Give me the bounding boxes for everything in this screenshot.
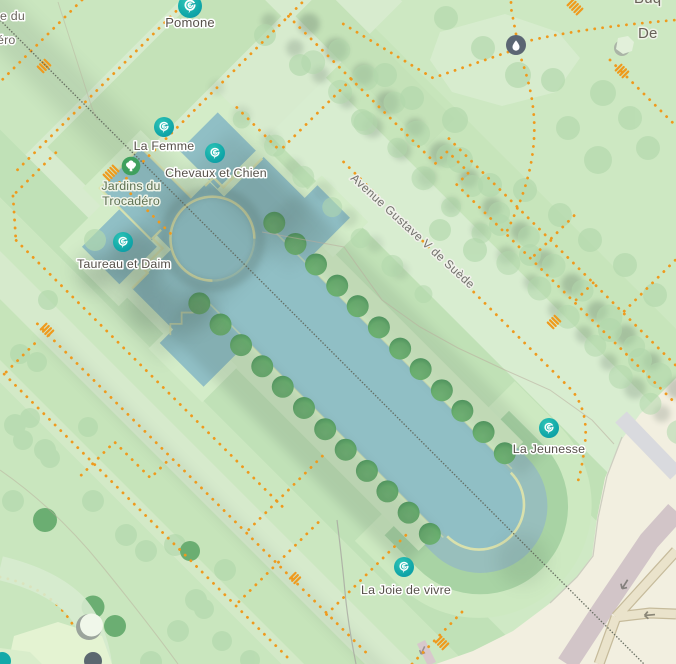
svg-text:Trocadéro: Trocadéro (102, 194, 160, 208)
svg-text:Buq: Buq (634, 0, 661, 7)
svg-text:Taureau et Daim: Taureau et Daim (77, 257, 171, 271)
svg-text:Jardins du: Jardins du (101, 179, 160, 193)
svg-text:De: De (638, 25, 658, 42)
svg-text:éro: éro (0, 33, 16, 47)
svg-text:La Femme: La Femme (134, 139, 195, 153)
svg-text:Chevaux et Chien: Chevaux et Chien (165, 166, 267, 180)
svg-text:La Joie de vivre: La Joie de vivre (361, 583, 451, 597)
svg-text:e du: e du (0, 9, 25, 23)
svg-text:La Jeunesse: La Jeunesse (513, 442, 585, 456)
svg-text:Pomone: Pomone (165, 15, 215, 30)
